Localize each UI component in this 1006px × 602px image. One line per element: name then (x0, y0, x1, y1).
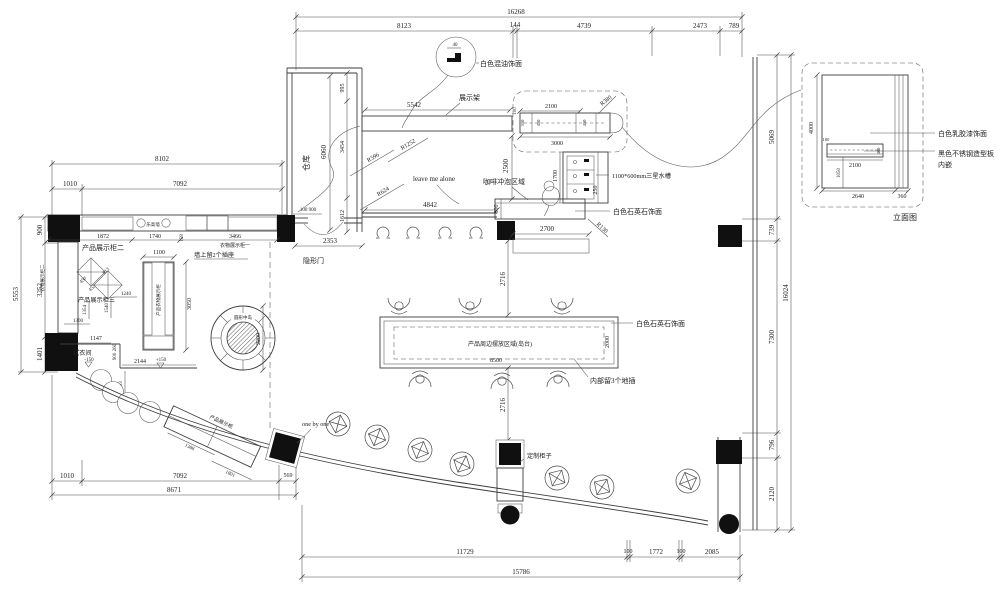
warehouse-d995: 995 (340, 84, 346, 93)
detail-bubble: 40 白色混油饰面 (402, 37, 522, 128)
dim-left-s3: 1401 (36, 347, 44, 362)
top-shelf-area: 2100 100 3000 350 450 450 R380 (513, 91, 627, 152)
shelf-d450a: 450 (536, 119, 541, 127)
lz-d1740: 1740 (149, 234, 161, 240)
cabinet2-label: 产品展示柜二 (82, 243, 124, 252)
dim-right-s1: 5069 (768, 130, 776, 145)
elev-d4000: 4000 (809, 122, 815, 134)
wall-pier (718, 225, 742, 247)
floor-plan-canvas: 16268 8123 144 4739 2473 789 11729 100 1… (0, 0, 1006, 602)
seat-figure (459, 298, 481, 314)
dim-chain-top-left: 8102 1010 7092 (49, 155, 284, 216)
lz-d158: 158 (180, 234, 185, 242)
elev-d360: 360 (898, 194, 907, 200)
dim-2353: 2353 (323, 237, 338, 245)
dim-bottom-s2: 100 (624, 549, 633, 555)
lz-d1240: 1240 (121, 292, 132, 297)
elev-inlay-label-1: 黑色不锈钢造型板 (938, 149, 994, 158)
rack-d5542: 5542 (407, 101, 422, 109)
lz-d1300: 1300 (73, 319, 84, 324)
dim-tl-s2: 7092 (173, 180, 188, 188)
dim-right-overall: 16024 (782, 284, 790, 302)
warehouse-d6060: 6060 (320, 145, 328, 160)
shelf-d2100: 2100 (545, 104, 557, 110)
elev-d400: 400 (876, 147, 881, 155)
dim-bl-s2: 7092 (173, 472, 188, 480)
chair-icon (445, 447, 478, 480)
round-island: 圆形中岛 2200 (211, 303, 275, 372)
detail-num: 40 (453, 43, 459, 48)
lz-d1540: 1540 (105, 303, 110, 314)
elevation-view: 4000 100 2100 400 1050 2640 360 白色乳胶漆饰面 … (622, 63, 994, 222)
dim-top-s1: 8123 (397, 22, 412, 30)
dim-bl-s3: 569 (284, 473, 293, 479)
dim-left-s1: 900 (36, 224, 44, 235)
clothing-display-cabinet: 产品衣物展示柜 1100 3050 (140, 250, 193, 353)
elev-d100: 100 (823, 137, 831, 142)
chair-icon (404, 434, 436, 466)
stool-icon (376, 227, 390, 238)
seat-figure (409, 371, 431, 387)
elev-wall-finish-label: 白色乳胶漆饰面 (938, 129, 987, 138)
column-pier (497, 221, 515, 240)
barista-figure (542, 181, 559, 216)
chair-icon (361, 421, 393, 453)
detail-label: 白色混油饰面 (480, 59, 522, 68)
quartz-counter-band (513, 239, 589, 253)
wall-sockets-note: 墙上留2个插座 (194, 251, 234, 259)
warehouse-label: 仓库 (301, 155, 311, 171)
dim-right-s4: 796 (768, 439, 776, 450)
note-leave-me-alone: leave me alone (413, 175, 455, 183)
seat-figure (551, 298, 573, 314)
lego-wall-label: 乐高墙 (146, 221, 160, 228)
dim-bottom-s5: 2085 (705, 548, 720, 556)
fitting-d900-260: 900 260 (113, 343, 118, 360)
column-circle (501, 506, 520, 525)
coffee-d2700: 2700 (540, 225, 555, 233)
dim-right-s3: 7300 (768, 330, 776, 345)
wall-pier (716, 440, 742, 464)
seat-figure (388, 298, 410, 314)
dim-bottom-s3: 1772 (649, 548, 664, 556)
elev-d1050: 1050 (837, 168, 842, 179)
dim-chain-right: 5069 739 7300 796 2120 16024 (742, 52, 795, 532)
dim-left-overall: 5553 (12, 287, 20, 302)
lz-d450: 450 (79, 276, 88, 285)
dim-bottom-overall: 15786 (512, 568, 530, 576)
dim-bl-s1: 1010 (60, 472, 75, 480)
dim-chain-bottom-left: 1010 7092 569 8671 (49, 375, 298, 500)
note-one-by-one: one by one (302, 421, 329, 428)
lz-d3466: 3466 (229, 234, 241, 240)
floor-plan-page: 16268 8123 144 4739 2473 789 11729 100 1… (0, 0, 1006, 602)
note-leader (437, 185, 459, 204)
cabinet1-label: 衣物展示柜一 (220, 242, 250, 249)
column-circle (719, 514, 739, 534)
lz-d3050: 3050 (187, 298, 193, 310)
curved-glass-wall: one by one 定制柜子 (76, 373, 742, 534)
lz-d813: 813 (102, 267, 111, 276)
dim-top-overall: 16268 (507, 8, 525, 16)
elevation-connector (622, 90, 801, 167)
island-d2716-below: 2716 (499, 398, 507, 413)
rack-d4842: 4842 (423, 201, 438, 209)
island-table: 2716 产品周边摆放区域(岛台) 8500 2000 白色石英石饰面 内部留3… (380, 238, 685, 442)
island-d8500: 8500 (490, 358, 502, 364)
stool-circle (118, 393, 139, 414)
warehouse-d3454: 3454 (340, 141, 346, 153)
dim-bl-overall: 8671 (167, 486, 182, 494)
stool-icon (469, 227, 483, 238)
warehouse-d1612: 1612 (340, 210, 346, 222)
elevation-caption: 立面图 (893, 212, 917, 222)
lz-d1100: 1100 (153, 250, 165, 256)
vcab-label: 产品衣物展示柜 (155, 284, 162, 316)
right-lower-structure (716, 437, 742, 534)
sink-label: 1100*600mm三星水槽 (612, 172, 671, 180)
chair-icon (673, 466, 702, 495)
shelf-d100: 100 (513, 107, 518, 115)
detail-section-glyph (447, 53, 461, 62)
wall-pier (48, 215, 80, 242)
chair-icon (540, 461, 574, 495)
fitting-d2144: 2144 (134, 359, 146, 365)
coffee-d2500: 2500 (502, 159, 510, 174)
dim-top-s2: 144 (510, 21, 521, 29)
dim-top-s5: 789 (729, 22, 740, 30)
island-sockets-label: 内部留3个地插 (590, 376, 636, 385)
coffee-area: 2500 1700 250 800 2700 R130 咖啡冲泡区域 1100*… (483, 133, 671, 253)
left-retail-zone: 乐高墙 1872 1740 3466 158 产品展示柜二 衣物展示柜一 墙上留… (39, 215, 295, 371)
dim-right-s5: 2120 (768, 487, 776, 502)
island-d2716-above: 2716 (499, 272, 507, 287)
stool-icon (438, 227, 452, 238)
shelf-d3000: 3000 (551, 141, 563, 147)
seat-figure (547, 371, 569, 387)
dim-chain-bottom: 11729 100 1772 100 2085 15786 (299, 505, 742, 582)
island-quartz-label: 白色石英石饰面 (636, 319, 685, 328)
seat-figure (491, 373, 513, 389)
dim-top-s3: 4739 (577, 22, 592, 30)
lz-d1354: 1354 (83, 305, 88, 316)
coffee-d800: 800 (494, 205, 500, 214)
dim-tl-s1: 1010 (63, 180, 78, 188)
hidden-door-arc (304, 222, 343, 235)
bar-stool-row (376, 227, 483, 238)
radius-r130: R130 (595, 222, 609, 235)
coffee-quartz-label: 白色石英石饰面 (613, 207, 662, 216)
warehouse-room: 仓库 6060 995 3454 1612 100 900 2353 隐形门 (287, 68, 365, 265)
island-area-label: 产品周边摆放区域(岛台) (468, 340, 532, 348)
fitting-level-plus: +150 (156, 358, 167, 363)
shelf-d350: 350 (520, 119, 525, 127)
stool-icon (406, 227, 420, 238)
island-d2000: 2000 (605, 336, 611, 348)
shelf-d450b: 450 (582, 119, 587, 127)
cabinet3-label: 产品展示柜三 (78, 296, 115, 304)
wall-pier (277, 215, 295, 242)
elev-inlay-label-2: 内嵌 (938, 160, 952, 169)
fitting-label: 试衣间 (73, 349, 92, 357)
cabinet2v-label: 衣物展示柜二 (39, 264, 46, 291)
custom-cabinet-label: 定制柜子 (527, 452, 552, 460)
elev-d2640: 2640 (852, 194, 864, 200)
hidden-door-label: 隐形门 (303, 256, 324, 265)
dim-bottom-s1: 11729 (456, 548, 474, 556)
dim-tl-overall: 8102 (155, 155, 170, 163)
rack-label: 展示架 (459, 94, 480, 102)
round-island-label: 圆形中岛 (234, 314, 252, 321)
lz-d1872: 1872 (97, 234, 109, 240)
coffee-d250: 250 (593, 186, 599, 195)
coffee-area-label: 咖啡冲泡区域 (483, 177, 525, 186)
chair-icon (585, 470, 619, 504)
dim-right-s2: 739 (768, 224, 776, 235)
dim-top-s4: 2473 (693, 22, 708, 30)
dim-bottom-s4: 100 (677, 549, 686, 555)
coffee-d1700: 1700 (553, 170, 559, 182)
fitting-d1147: 1147 (90, 336, 102, 342)
elev-d2100: 2100 (849, 163, 861, 169)
stool-circle (140, 402, 161, 423)
round-island-d2200: 2200 (256, 333, 262, 345)
